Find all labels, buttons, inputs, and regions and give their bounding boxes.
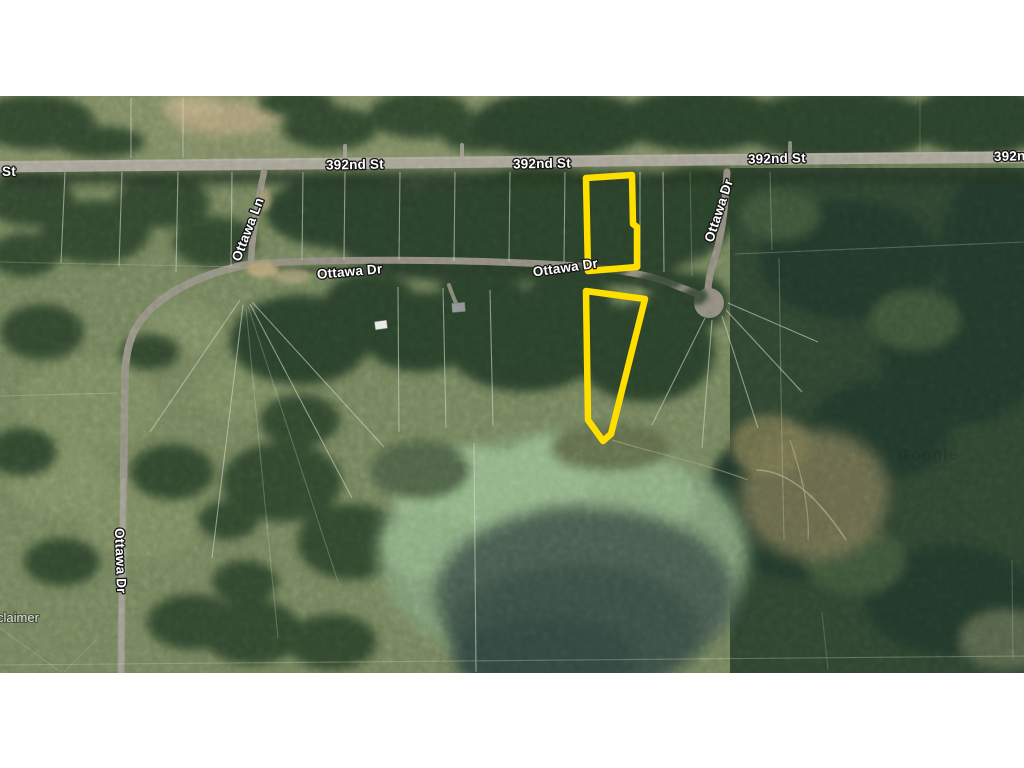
satellite-map-canvas: St 392nd St 392nd St 392nd St 392nd St O… (0, 96, 1024, 673)
google-watermark: Google (897, 447, 958, 464)
listing-photo-page: St 392nd St 392nd St 392nd St 392nd St O… (0, 0, 1024, 768)
satellite-grain (0, 96, 1024, 673)
road-label-ottawa-dr-southwest: Ottawa Dr (112, 528, 129, 595)
road-label-392nd-st-2: 392nd St (513, 155, 571, 171)
attribution-text: claimer (0, 610, 40, 625)
satellite-map: St 392nd St 392nd St 392nd St 392nd St O… (0, 96, 1024, 673)
road-label-392nd-st-edge-right: 392nd St (994, 147, 1024, 164)
road-label-392nd-st-edge-left: St (2, 164, 16, 179)
road-label-392nd-st-3: 392nd St (748, 150, 807, 167)
road-label-392nd-st-1: 392nd St (326, 156, 384, 172)
